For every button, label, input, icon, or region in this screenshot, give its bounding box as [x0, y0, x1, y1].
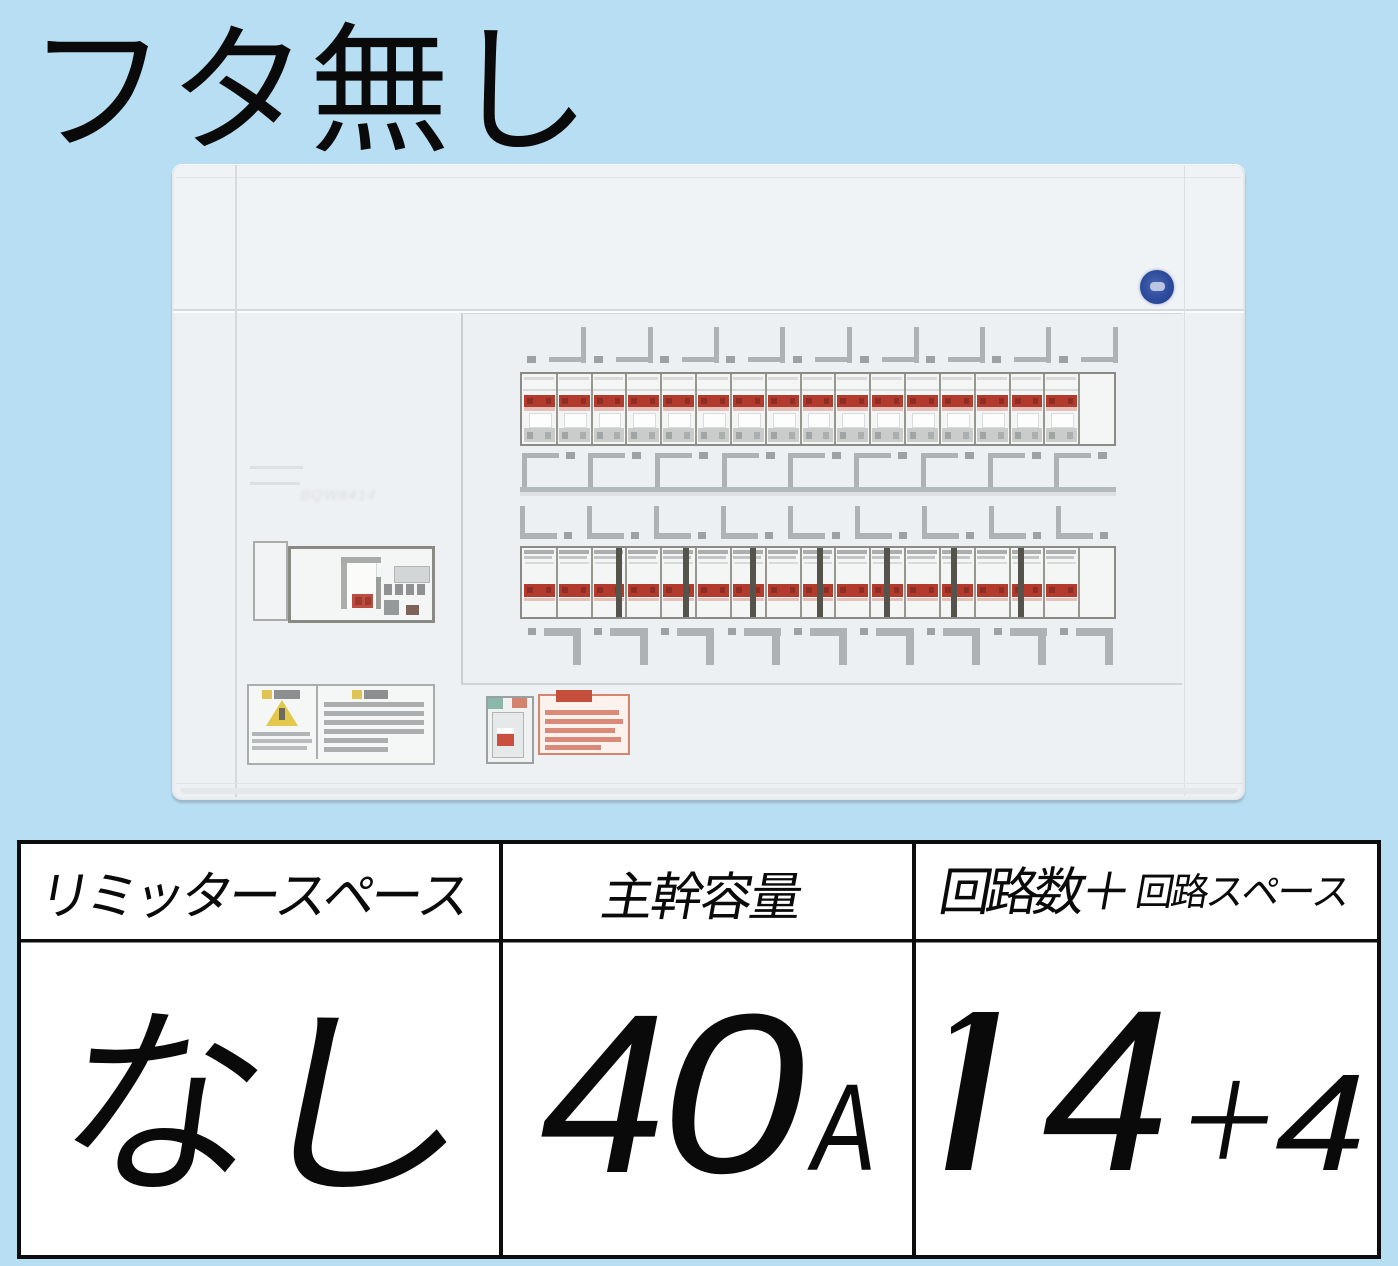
- svg-text:4: 4: [1042, 962, 1170, 1219]
- svg-text:A: A: [807, 1060, 876, 1197]
- svg-text:4: 4: [540, 968, 666, 1221]
- svg-text:4: 4: [1275, 1045, 1366, 1200]
- svg-text:0: 0: [661, 967, 805, 1221]
